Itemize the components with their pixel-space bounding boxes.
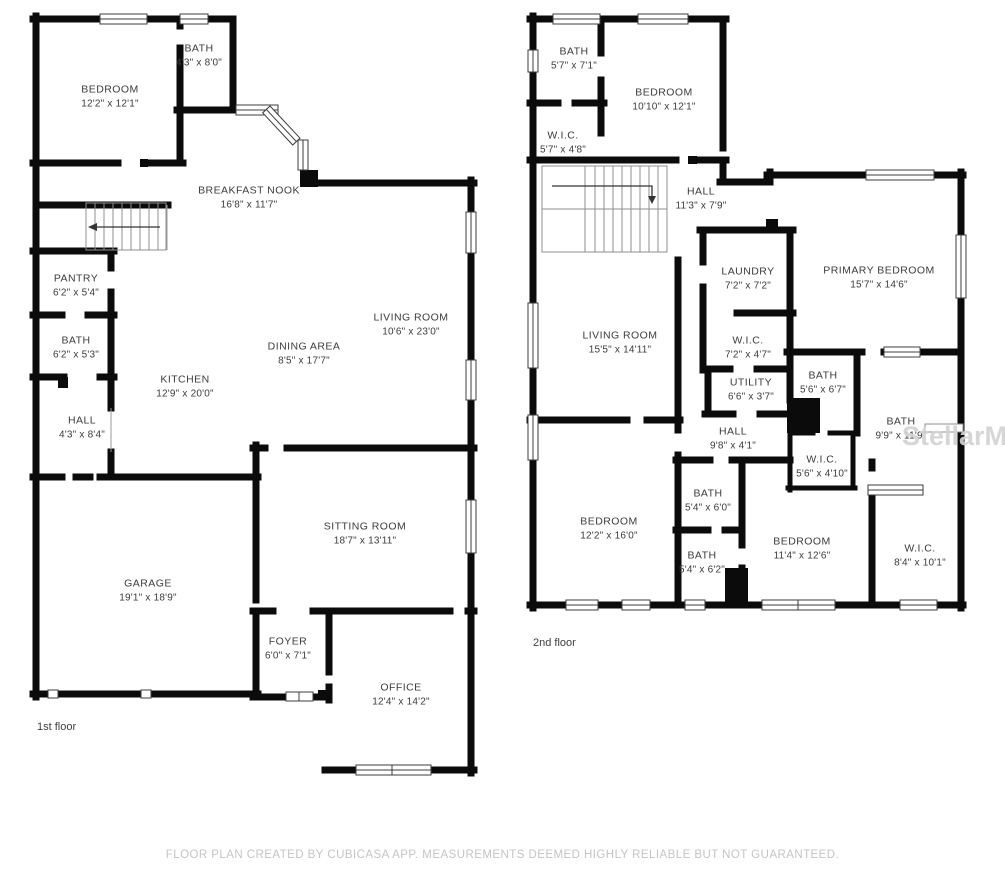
- room-label: GARAGE19'1" x 18'9": [119, 577, 176, 604]
- room-name: PANTRY: [53, 272, 99, 286]
- room-label: HALL11'3" x 7'9": [676, 185, 727, 212]
- floor1-walls: [33, 16, 474, 773]
- room-name: UTILITY: [728, 376, 774, 390]
- room-name: W.I.C.: [894, 542, 946, 556]
- room-dims: 19'1" x 18'9": [119, 591, 176, 604]
- floor1-stairs-icon: [86, 203, 166, 250]
- room-name: BEDROOM: [632, 86, 695, 100]
- room-label: W.I.C.7'2" x 4'7": [725, 334, 771, 361]
- room-dims: 6'2" x 5'4": [53, 286, 99, 299]
- room-label: SITTING ROOM18'7" x 13'11": [324, 520, 406, 547]
- room-dims: 5'7" x 7'1": [551, 59, 597, 72]
- room-dims: 4'3" x 8'0": [176, 56, 222, 69]
- room-dims: 5'6" x 6'7": [800, 383, 846, 396]
- room-label: BEDROOM12'2" x 16'0": [580, 515, 637, 542]
- footer-disclaimer: FLOOR PLAN CREATED BY CUBICASA APP. MEAS…: [0, 849, 1005, 861]
- room-label: KITCHEN12'9" x 20'0": [156, 373, 213, 400]
- room-dims: 4'3" x 8'4": [59, 428, 105, 441]
- room-name: BATH: [800, 369, 846, 383]
- floorplan-page: { "page": { "footer_disclaimer": "FLOOR …: [0, 0, 1005, 877]
- room-name: BREAKFAST NOOK: [198, 184, 300, 198]
- room-dims: 16'8" x 11'7": [198, 198, 300, 211]
- room-label: LAUNDRY7'2" x 7'2": [721, 265, 774, 292]
- room-dims: 12'2" x 12'1": [81, 97, 138, 110]
- room-label: UTILITY6'6" x 3'7": [728, 376, 774, 403]
- room-label: PRIMARY BEDROOM15'7" x 14'6": [823, 264, 934, 291]
- room-label: W.I.C.5'7" x 4'8": [540, 129, 586, 156]
- floor2-caption: 2nd floor: [533, 637, 576, 649]
- room-name: FOYER: [265, 635, 311, 649]
- room-name: HALL: [676, 185, 727, 199]
- bay-window-diagonal: [263, 106, 300, 145]
- room-dims: 5'7" x 4'8": [540, 143, 586, 156]
- room-label: BATH5'4" x 6'0": [685, 487, 731, 514]
- room-dims: 8'4" x 10'1": [894, 556, 946, 569]
- room-label: BREAKFAST NOOK16'8" x 11'7": [198, 184, 300, 211]
- room-dims: 6'2" x 5'3": [53, 348, 99, 361]
- room-label: BEDROOM11'4" x 12'6": [773, 535, 830, 562]
- room-label: LIVING ROOM15'5" x 14'11": [583, 329, 658, 356]
- room-label: W.I.C.8'4" x 10'1": [894, 542, 946, 569]
- room-dims: 10'10" x 12'1": [632, 100, 695, 113]
- room-name: KITCHEN: [156, 373, 213, 387]
- room-dims: 12'9" x 20'0": [156, 387, 213, 400]
- room-dims: 15'7" x 14'6": [823, 278, 934, 291]
- room-label: W.I.C.5'6" x 4'10": [796, 453, 848, 480]
- room-label: BATH6'2" x 5'3": [53, 334, 99, 361]
- room-dims: 15'5" x 14'11": [583, 343, 658, 356]
- room-label: BATH4'3" x 8'0": [176, 42, 222, 69]
- room-name: SITTING ROOM: [324, 520, 406, 534]
- room-name: BEDROOM: [81, 83, 138, 97]
- room-label: HALL4'3" x 8'4": [59, 414, 105, 441]
- floor2-stairs-icon: [542, 166, 667, 252]
- room-dims: 5'4" x 6'2": [679, 563, 725, 576]
- room-dims: 5'6" x 4'10": [796, 467, 848, 480]
- room-name: BATH: [551, 45, 597, 59]
- room-name: BEDROOM: [773, 535, 830, 549]
- room-name: BATH: [679, 549, 725, 563]
- room-name: BEDROOM: [580, 515, 637, 529]
- stellar-mls-watermark: StellarMLS: [902, 421, 1005, 452]
- room-dims: 12'4" x 14'2": [372, 695, 429, 708]
- room-dims: 6'0" x 7'1": [265, 649, 311, 662]
- room-name: W.I.C.: [540, 129, 586, 143]
- room-label: BATH5'6" x 6'7": [800, 369, 846, 396]
- floor1-caption: 1st floor: [37, 721, 76, 733]
- room-label: LIVING ROOM10'6" x 23'0": [374, 311, 449, 338]
- room-label: PANTRY6'2" x 5'4": [53, 272, 99, 299]
- room-dims: 5'4" x 6'0": [685, 501, 731, 514]
- room-dims: 7'2" x 7'2": [721, 279, 774, 292]
- room-label: BATH5'4" x 6'2": [679, 549, 725, 576]
- room-name: LIVING ROOM: [583, 329, 658, 343]
- room-name: BATH: [53, 334, 99, 348]
- room-name: HALL: [710, 425, 756, 439]
- room-name: W.I.C.: [796, 453, 848, 467]
- room-dims: 9'8" x 4'1": [710, 439, 756, 452]
- room-dims: 11'4" x 12'6": [773, 549, 830, 562]
- room-dims: 12'2" x 16'0": [580, 529, 637, 542]
- room-name: GARAGE: [119, 577, 176, 591]
- floor1-openings: [111, 205, 167, 452]
- room-dims: 10'6" x 23'0": [374, 325, 449, 338]
- room-label: BATH5'7" x 7'1": [551, 45, 597, 72]
- room-name: PRIMARY BEDROOM: [823, 264, 934, 278]
- room-dims: 11'3" x 7'9": [676, 199, 727, 212]
- room-name: DINING AREA: [268, 340, 341, 354]
- room-name: BATH: [685, 487, 731, 501]
- room-dims: 6'6" x 3'7": [728, 390, 774, 403]
- room-name: HALL: [59, 414, 105, 428]
- room-label: HALL9'8" x 4'1": [710, 425, 756, 452]
- room-name: W.I.C.: [725, 334, 771, 348]
- room-label: DINING AREA8'5" x 17'7": [268, 340, 341, 367]
- room-name: LAUNDRY: [721, 265, 774, 279]
- room-dims: 7'2" x 4'7": [725, 348, 771, 361]
- room-name: BATH: [176, 42, 222, 56]
- room-label: BEDROOM12'2" x 12'1": [81, 83, 138, 110]
- room-name: LIVING ROOM: [374, 311, 449, 325]
- floorplan-drawing: [0, 0, 1005, 877]
- room-name: OFFICE: [372, 681, 429, 695]
- room-dims: 18'7" x 13'11": [324, 534, 406, 547]
- room-dims: 8'5" x 17'7": [268, 354, 341, 367]
- room-label: FOYER6'0" x 7'1": [265, 635, 311, 662]
- room-label: BEDROOM10'10" x 12'1": [632, 86, 695, 113]
- room-label: OFFICE12'4" x 14'2": [372, 681, 429, 708]
